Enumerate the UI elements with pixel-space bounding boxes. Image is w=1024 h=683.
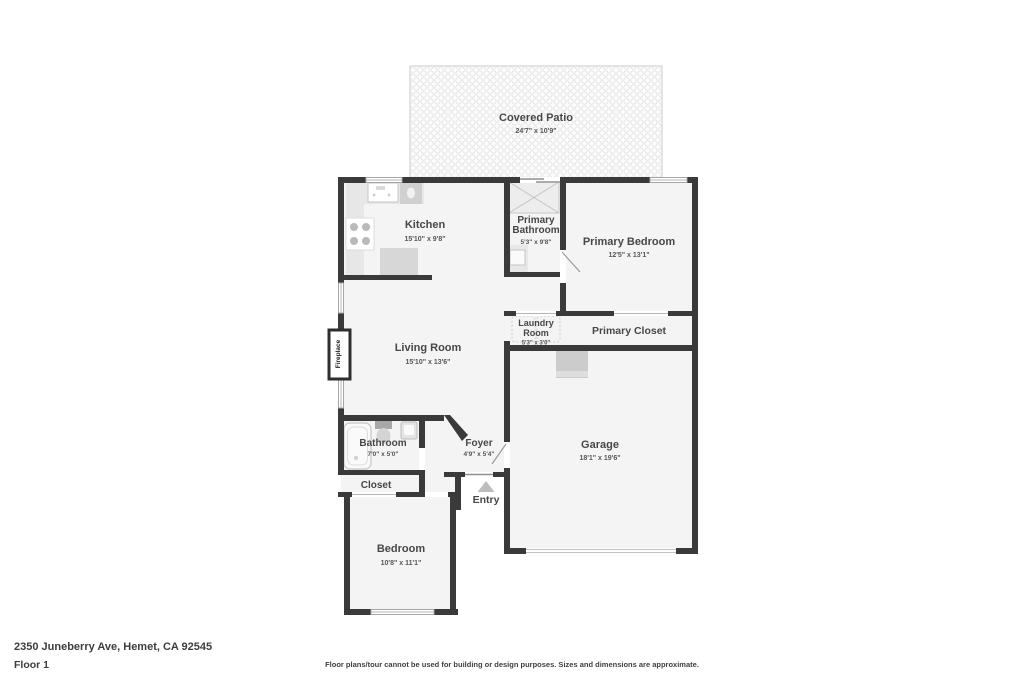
garage-door xyxy=(526,548,676,554)
bedroom-dims: 10'8" x 11'1" xyxy=(381,560,422,567)
covered-patio-dims: 24'7" x 10'9" xyxy=(515,128,556,135)
bathroom-door xyxy=(419,448,425,470)
foyer-label: Foyer xyxy=(465,438,492,449)
closet-slider xyxy=(352,492,396,497)
laundry-room-dims: 5'3" x 3'0" xyxy=(522,341,551,347)
living-room-dims: 15'10" x 13'6" xyxy=(405,359,450,366)
entry-arrow-icon xyxy=(478,481,495,492)
kitchen-window xyxy=(366,178,402,183)
water-heater-icon xyxy=(556,349,588,378)
closet-label: Closet xyxy=(361,480,392,491)
primary-bedroom-window xyxy=(650,178,687,183)
living-room-window-1 xyxy=(339,283,344,313)
front-door xyxy=(465,472,493,477)
bathroom-sink-icon xyxy=(401,422,417,439)
bedroom-label: Bedroom xyxy=(377,543,426,555)
patio-slider-door xyxy=(520,177,560,183)
kitchen-label: Kitchen xyxy=(405,219,446,231)
primary-bathroom-label-2: Bathroom xyxy=(512,225,559,236)
bathroom-label: Bathroom xyxy=(359,438,406,449)
floor-plan-page: Fireplace Covered Patio 24'7" x 10'9" Ki… xyxy=(0,0,1024,683)
primary-closet-slider xyxy=(614,311,668,316)
kitchen-dims: 15'10" x 9'8" xyxy=(404,236,445,243)
garage-label: Garage xyxy=(581,439,619,451)
living-room-window-2 xyxy=(339,380,344,408)
laundry-door xyxy=(516,311,556,316)
disclaimer-text: Floor plans/tour cannot be used for buil… xyxy=(0,660,1024,669)
bedroom-door xyxy=(425,492,448,497)
kitchen-sink-icon xyxy=(368,183,398,202)
property-address: 2350 Juneberry Ave, Hemet, CA 92545 xyxy=(14,641,212,653)
laundry-room-label-1: Laundry xyxy=(518,318,554,328)
bedroom-window xyxy=(371,610,434,615)
shower-icon xyxy=(509,182,559,213)
living-room-label: Living Room xyxy=(395,342,462,354)
primary-closet-label: Primary Closet xyxy=(592,325,667,337)
foyer-dims: 4'9" x 5'4" xyxy=(464,451,495,458)
entry-label: Entry xyxy=(473,494,500,506)
kitchen-dishwasher-icon xyxy=(400,182,422,204)
covered-patio-label: Covered Patio xyxy=(499,112,573,124)
primary-bedroom-dims: 12'5" x 13'1" xyxy=(608,252,649,259)
primary-bedroom-label: Primary Bedroom xyxy=(583,236,676,248)
primary-bathroom-dims: 5'3" x 9'8" xyxy=(521,239,552,246)
stove-icon xyxy=(346,218,374,250)
vanity-sink-icon xyxy=(508,245,528,272)
floor-plan: Fireplace Covered Patio 24'7" x 10'9" Ki… xyxy=(0,0,1024,683)
fireplace-label: Fireplace xyxy=(335,339,342,368)
laundry-room-label-2: Room xyxy=(523,328,549,338)
bathroom-dims: 7'0" x 5'0" xyxy=(368,451,399,458)
garage-dims: 18'1" x 19'6" xyxy=(579,455,620,462)
fireplace: Fireplace xyxy=(329,330,350,379)
kitchen-island-icon xyxy=(380,248,418,276)
